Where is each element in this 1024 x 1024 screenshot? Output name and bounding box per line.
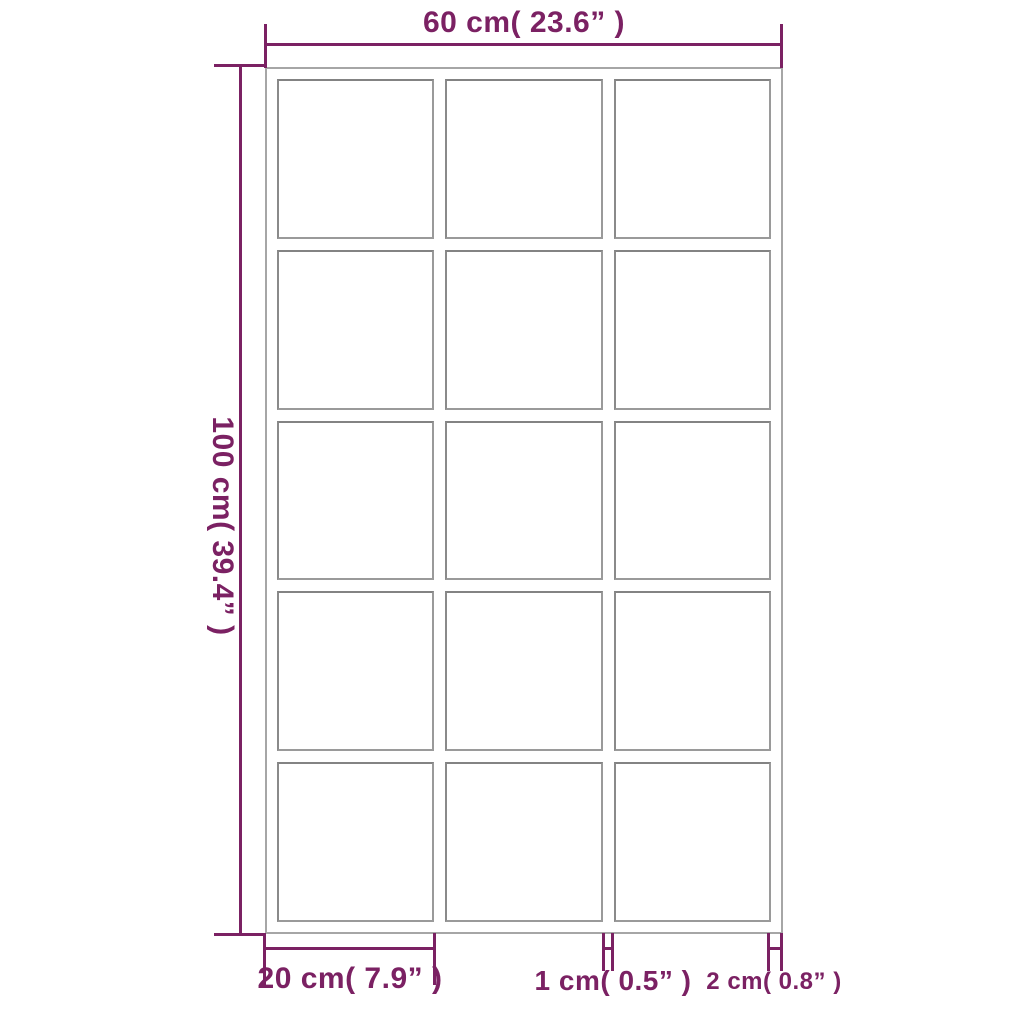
mirror-pane (614, 250, 771, 410)
mirror-pane (445, 79, 602, 239)
dim-frame-tick-left (767, 933, 770, 971)
dim-height-tick-top (214, 64, 264, 67)
dim-pane-label: 20 cm( 7.9” ) (240, 962, 460, 996)
mirror-pane (277, 79, 434, 239)
mirror-pane (614, 79, 771, 239)
mirror-pane (614, 762, 771, 922)
mirror-pane (445, 591, 602, 751)
dim-height-tick-bottom (214, 933, 264, 936)
mirror-frame (265, 67, 783, 934)
dim-height-label: 100 cm( 39.4” ) (204, 395, 240, 657)
dim-frame-label: 2 cm( 0.8” ) (674, 968, 874, 996)
dim-width-line (265, 43, 783, 46)
dim-width-tick-left (264, 24, 267, 68)
diagram-canvas: 60 cm( 23.6” ) 100 cm( 39.4” ) 20 cm( 7.… (0, 0, 1024, 1024)
dim-width-tick-right (780, 24, 783, 68)
mirror-pane (614, 591, 771, 751)
mirror-pane (445, 250, 602, 410)
mirror-pane (277, 591, 434, 751)
mirror-pane (614, 421, 771, 581)
mirror-pane (277, 250, 434, 410)
mirror-pane (445, 421, 602, 581)
dim-frame-tick-right (780, 933, 783, 971)
mirror-pane (277, 421, 434, 581)
dim-frame-crossbar (767, 947, 783, 950)
mirror-pane (445, 762, 602, 922)
dim-mullion-crossbar (602, 947, 614, 950)
mirror-pane (277, 762, 434, 922)
pane-grid (277, 79, 771, 922)
dim-width-label: 60 cm( 23.6” ) (339, 6, 709, 40)
dim-pane-line (264, 947, 436, 950)
